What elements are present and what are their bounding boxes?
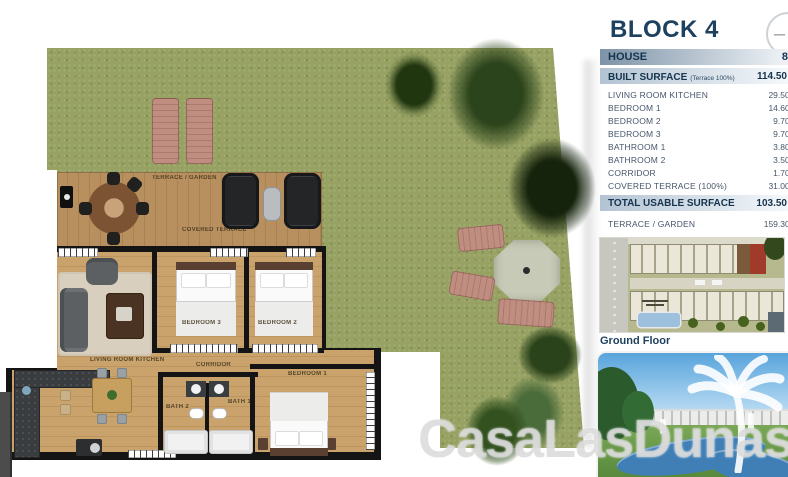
dining-chair	[97, 414, 107, 424]
built-surface-value: 114.50 m²	[757, 71, 788, 82]
bar-stool	[60, 390, 71, 401]
site-plan-tree	[764, 238, 784, 260]
wall	[158, 372, 163, 456]
row-label: COVERED TERRACE (100%)	[608, 181, 727, 191]
site-plan-tree	[688, 318, 698, 328]
palm-logo-icon	[680, 355, 788, 473]
sun-lounger	[457, 224, 505, 253]
bedroom3-label: BEDROOM 3	[182, 320, 221, 326]
minus-icon: –	[774, 23, 785, 46]
wall	[152, 252, 157, 352]
living-room-armchair	[86, 258, 118, 285]
deck-sofa	[284, 173, 321, 229]
terrace-garden-row: TERRACE / GARDEN 159.30 m²	[600, 217, 788, 230]
window	[366, 372, 375, 450]
deck-wall-unit	[60, 186, 73, 208]
site-plan-car	[712, 280, 722, 285]
photo-tree	[622, 391, 654, 433]
site-plan-road	[600, 238, 628, 332]
page-canvas: TERRACE / GARDEN COVERED TERRACE LIVING …	[0, 0, 788, 477]
bath1-label: BATH 1	[228, 399, 251, 405]
bath1-sink	[209, 381, 229, 397]
table-row: CORRIDOR 1.70 m²	[600, 166, 788, 179]
round-tree	[518, 326, 582, 384]
row-value: 1.70 m²	[773, 168, 788, 178]
site-plan-car	[695, 280, 705, 285]
built-surface-label: BUILT SURFACE	[608, 72, 687, 83]
row-value: 9.70 m²	[773, 129, 788, 139]
dining-chair	[117, 368, 127, 378]
site-plan-thumbnail[interactable]	[600, 238, 784, 332]
row-label: BATHROOM 1	[608, 142, 666, 152]
garden-tree	[466, 396, 528, 466]
ground-floor-label: Ground Floor	[600, 335, 670, 347]
table-row: BEDROOM 3 9.70 m²	[600, 127, 788, 140]
row-value: 3.50 m²	[773, 155, 788, 165]
row-value: 9.70 m²	[773, 116, 788, 126]
site-plan-tree	[756, 322, 765, 331]
bath2-label: BATH 2	[166, 404, 189, 410]
bath1-toilet	[212, 408, 227, 419]
table-row: LIVING ROOM KITCHEN 29.50 m²	[600, 88, 788, 101]
bath2-tub	[164, 430, 208, 454]
total-value: 103.50 m²	[756, 198, 788, 209]
sun-lounger	[497, 298, 555, 328]
house-value: 8	[782, 51, 788, 63]
deck-sofa	[222, 173, 259, 229]
window	[286, 248, 316, 257]
window	[170, 344, 238, 353]
photo-figure	[660, 419, 666, 434]
total-row: TOTAL USABLE SURFACE 103.50 m²	[600, 195, 788, 211]
dining-table	[92, 378, 132, 413]
bath2-sink	[186, 381, 206, 397]
deck-chair	[107, 172, 120, 185]
row-label: BATHROOM 2	[608, 155, 666, 165]
site-plan-pool	[638, 313, 680, 327]
window	[210, 248, 248, 257]
terrace-garden-label: TERRACE / GARDEN	[152, 175, 217, 181]
living-room-label: LIVING ROOM KITCHEN	[90, 357, 164, 363]
sun-lounger	[152, 98, 179, 164]
deck-chair	[79, 202, 92, 215]
table-row: BATHROOM 2 3.50 m²	[600, 153, 788, 166]
row-label: BEDROOM 2	[608, 116, 661, 126]
house-row: HOUSE 8	[600, 49, 788, 65]
table-row: BATHROOM 1 3.80 m²	[600, 140, 788, 153]
row-value: 159.30 m²	[764, 219, 788, 229]
dining-chair	[97, 368, 107, 378]
site-plan-tree	[716, 322, 725, 331]
deck-side-table	[263, 187, 281, 221]
site-plan-text-mark	[642, 300, 668, 302]
site-plan-corner-feature	[768, 312, 784, 332]
row-value: 14.60 m²	[768, 103, 788, 113]
dining-chair	[117, 414, 127, 424]
bedroom1-bed	[270, 392, 328, 456]
bar-stool	[60, 404, 71, 415]
corridor-label: CORRIDOR	[196, 362, 231, 368]
deck-chair	[107, 232, 120, 245]
wall	[250, 364, 376, 369]
row-label: BEDROOM 1	[608, 103, 661, 113]
wall	[244, 252, 249, 352]
bath1-tub	[209, 430, 253, 454]
nightstand	[258, 438, 268, 450]
palm-tree	[385, 52, 443, 118]
table-row: BEDROOM 1 14.60 m²	[600, 101, 788, 114]
built-surface-row: BUILT SURFACE(Terrace 100%) 114.50 m²	[600, 68, 788, 84]
row-label: LIVING ROOM KITCHEN	[608, 90, 708, 100]
window	[252, 344, 318, 353]
table-row: BEDROOM 2 9.70 m²	[600, 114, 788, 127]
deck-chair	[136, 202, 149, 215]
block-title: BLOCK 4	[610, 16, 719, 44]
site-plan-street	[630, 278, 784, 289]
coffee-table	[106, 293, 144, 339]
site-plan-text-mark	[646, 304, 664, 306]
living-room-sofa	[60, 288, 88, 352]
row-label: BEDROOM 3	[608, 129, 661, 139]
built-surface-note: (Terrace 100%)	[690, 75, 734, 82]
wall	[158, 372, 258, 377]
row-value: 3.80 m²	[773, 142, 788, 152]
oven	[76, 439, 102, 456]
bedroom1-label: BEDROOM 1	[288, 371, 327, 377]
house-label: HOUSE	[608, 51, 647, 63]
large-tree	[448, 38, 544, 150]
window	[58, 248, 98, 257]
neighbor-unit-strip	[0, 392, 12, 477]
palm-tree	[508, 138, 596, 238]
resort-photo[interactable]	[598, 353, 788, 477]
total-label: TOTAL USABLE SURFACE	[608, 198, 735, 209]
row-value: 31.00 m²	[768, 181, 788, 191]
row-value: 29.50 m²	[768, 90, 788, 100]
sun-lounger	[186, 98, 213, 164]
bath2-toilet	[189, 408, 204, 419]
site-plan-unit-brown	[737, 244, 750, 274]
site-plan-tree	[738, 316, 749, 327]
bedroom2-label: BEDROOM 2	[258, 320, 297, 326]
row-label: CORRIDOR	[608, 168, 656, 178]
kitchen-sink	[22, 386, 31, 395]
table-row: COVERED TERRACE (100%) 31.00 m²	[600, 179, 788, 192]
row-label: TERRACE / GARDEN	[608, 219, 695, 229]
